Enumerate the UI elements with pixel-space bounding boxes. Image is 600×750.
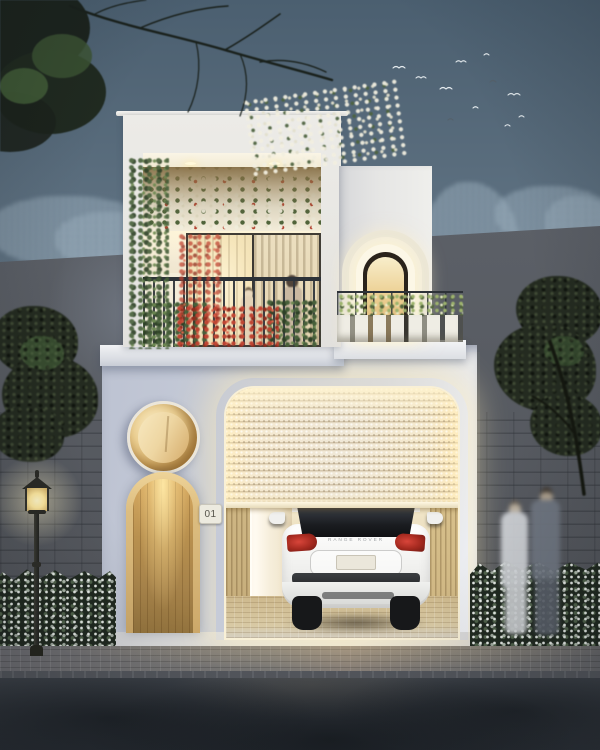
car-suv-rear: RANGE ROVER — [280, 494, 432, 634]
sidewalk — [0, 646, 600, 674]
upper-floor-opening — [143, 153, 321, 347]
car-wheel-left — [292, 596, 322, 630]
car-rear-window — [294, 503, 418, 537]
pergola-flower-canopy — [143, 167, 321, 231]
tree-top-left — [0, 0, 360, 160]
tower-parapet — [334, 340, 466, 359]
lamp-foot — [30, 645, 43, 656]
tree-right — [486, 276, 600, 501]
car-mirror-right — [427, 512, 443, 524]
tree-left — [0, 288, 104, 463]
car-license-plate — [336, 555, 376, 570]
garage-opening: RANGE ROVER — [226, 388, 458, 638]
house-number-plaque: 01 — [199, 504, 222, 524]
tower-balcony-railing — [337, 291, 463, 342]
tower-balcony-plants — [337, 293, 463, 316]
tower-balcony-planters — [337, 315, 463, 342]
arched-door-frame — [126, 472, 200, 633]
arched-door — [133, 479, 193, 633]
car-badge: RANGE ROVER — [309, 537, 404, 543]
climbing-vine — [127, 157, 169, 349]
hedge-left — [0, 565, 116, 653]
scene: RANGE ROVER 01 — [0, 0, 600, 750]
lamp-lantern — [25, 488, 49, 511]
downlight — [185, 162, 196, 165]
lamp-collar — [32, 562, 41, 567]
pedestrian-man — [527, 487, 565, 642]
house-number-text: 01 — [204, 509, 216, 520]
climbing-vine-flowers — [177, 233, 223, 325]
lamp-pole — [34, 514, 39, 648]
porthole-window — [127, 401, 200, 474]
car-wheel-right — [390, 596, 420, 630]
car-mirror-left — [269, 512, 285, 524]
garage-roller-shutter — [226, 388, 458, 508]
road — [0, 678, 600, 750]
porthole-glass — [138, 412, 189, 463]
